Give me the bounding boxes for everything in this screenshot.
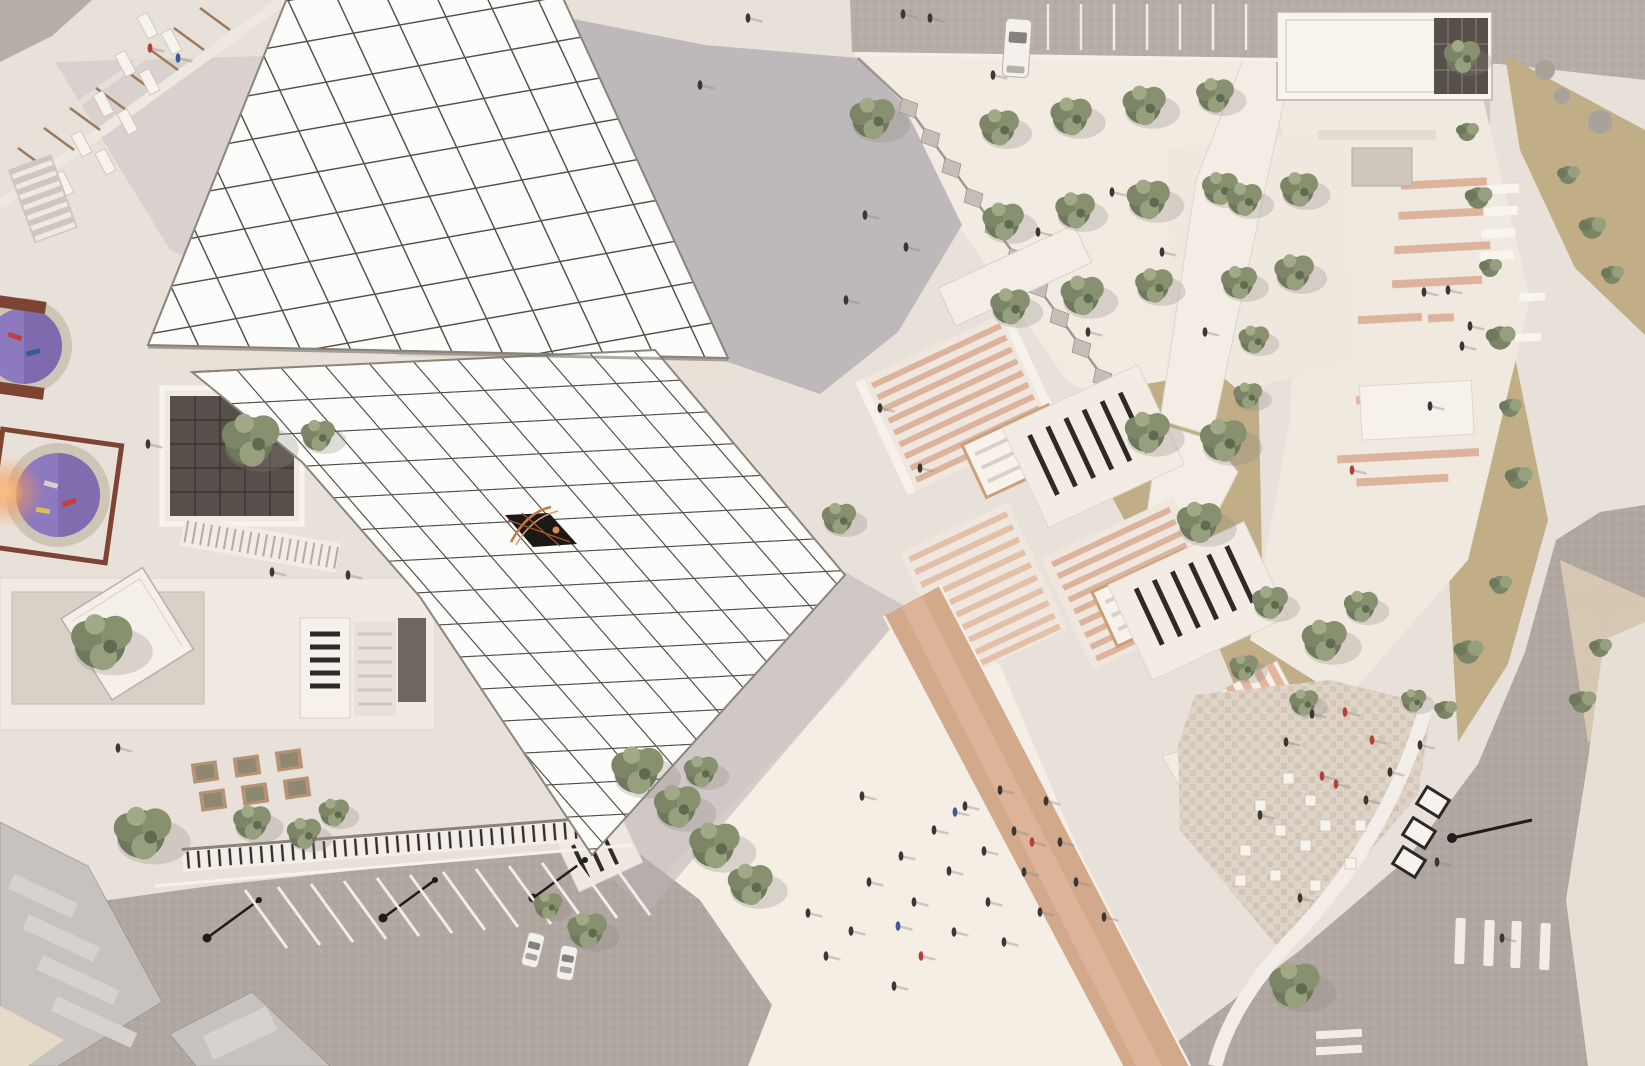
- scene-canvas: [0, 0, 1645, 1066]
- southwest-wing: [0, 568, 435, 730]
- van: [1002, 18, 1032, 78]
- terrace-white-deck: [1359, 380, 1474, 440]
- side-stair: [354, 622, 396, 716]
